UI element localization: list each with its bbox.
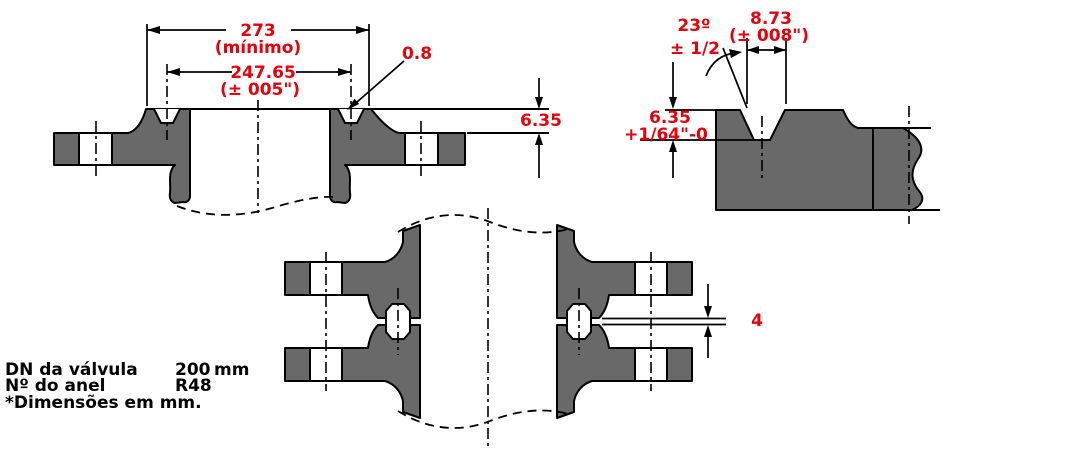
arrowhead <box>729 49 742 58</box>
face-height-value: 6.35 <box>520 111 562 131</box>
arrowhead-right <box>338 68 351 76</box>
arrowhead-left <box>747 46 759 54</box>
groove-detail-view: 23º ± 1/2 8.73 (± 008") 6.35 +1/64"-0 <box>624 9 940 224</box>
dimension-face-height-6-35: 6.35 <box>520 78 562 178</box>
dn-unit: mm <box>214 360 249 380</box>
angle-flank-line <box>723 48 747 108</box>
flange-assembly-view: 4 <box>285 208 763 450</box>
arrowhead-down <box>535 97 543 109</box>
units-note: *Dimensões em mm. <box>5 393 202 413</box>
arrowhead-right <box>774 46 786 54</box>
flange-face-section-view: 273 (mínimo) 247.65 (± 005") 0.8 6.35 <box>54 21 562 215</box>
groove-depth-tolerance: +1/64"-0 <box>624 125 708 145</box>
dimension-pitch-247-65: 247.65 (± 005") <box>167 63 351 140</box>
break-line-bottom <box>177 197 333 215</box>
od-note: (mínimo) <box>215 38 301 58</box>
arrowhead-left <box>147 26 160 34</box>
technical-drawing-canvas: 273 (mínimo) 247.65 (± 005") 0.8 6.35 <box>0 0 1066 457</box>
groove-angle-value: 23º <box>677 16 710 36</box>
groove-angle-tolerance: ± 1/2 <box>670 39 720 59</box>
dimension-groove-width-8-73: 8.73 (± 008") <box>729 9 809 104</box>
leader-corner-radius-0-8: 0.8 <box>347 44 432 110</box>
groove-width-tolerance: (± 008") <box>729 26 809 46</box>
leader-line <box>349 61 404 109</box>
notes-block: DN da válvula 200 mm Nº do anel R48 *Dim… <box>5 360 249 413</box>
extension-lines <box>747 38 786 104</box>
arrowhead-left <box>167 68 180 76</box>
pipe-break-line-bottom <box>398 410 572 428</box>
arrowhead-down <box>704 306 712 318</box>
groove-detail-block <box>716 110 922 210</box>
drawing-page: 273 (mínimo) 247.65 (± 005") 0.8 6.35 <box>0 0 1066 457</box>
pipe-break-line-top <box>398 215 572 233</box>
arrowhead-up <box>535 133 543 145</box>
face-gap-value: 4 <box>751 311 763 331</box>
pitch-tolerance: (± 005") <box>220 80 300 100</box>
arrowhead-up <box>704 325 712 337</box>
arrowhead-right <box>356 26 369 34</box>
corner-radius-value: 0.8 <box>402 44 432 64</box>
